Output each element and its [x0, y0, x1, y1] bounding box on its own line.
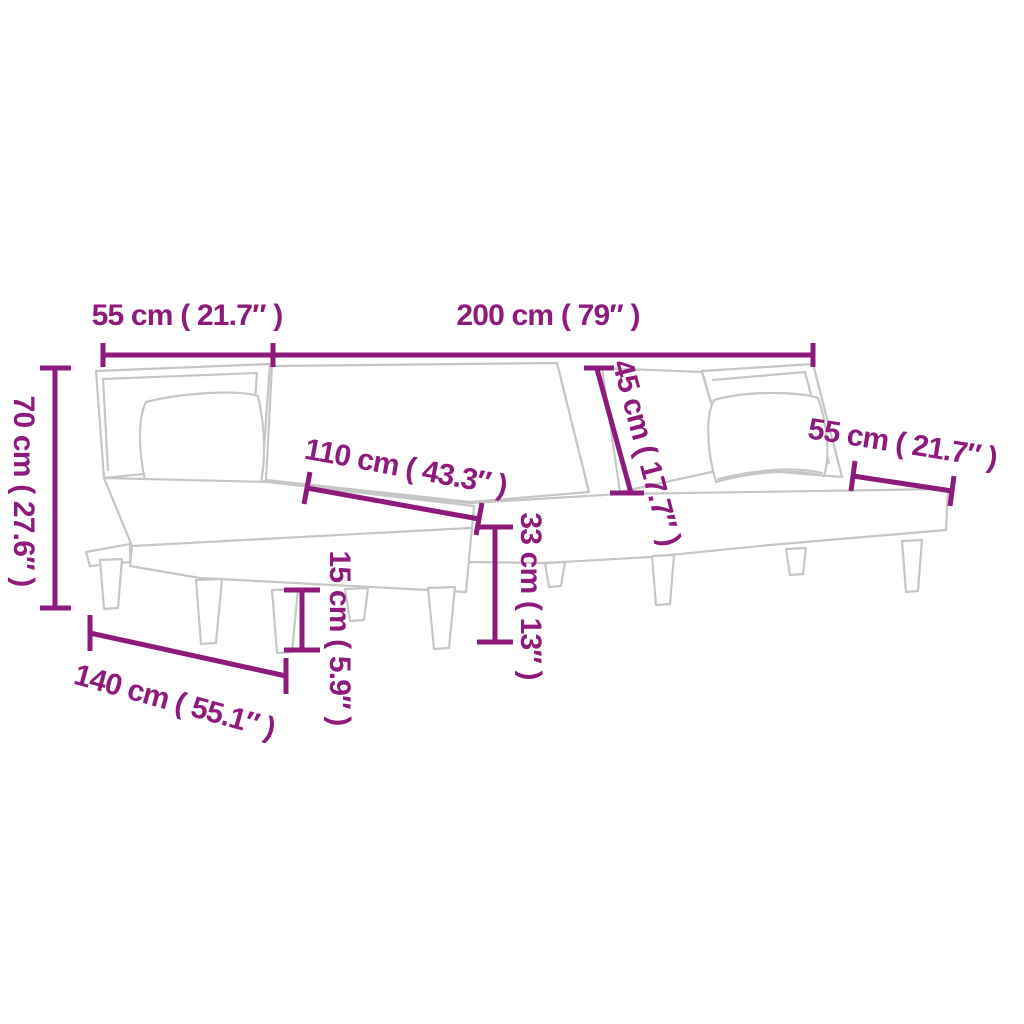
- leg: [902, 540, 922, 592]
- leg: [545, 562, 565, 587]
- leg: [786, 548, 806, 575]
- left-section-width-label: 55 cm ( 21.7″ ): [92, 299, 283, 332]
- leg: [428, 587, 455, 649]
- chaise-length-label: 140 cm ( 55.1″ ): [71, 658, 279, 745]
- overall-height-label: 70 cm ( 27.6″ ): [7, 396, 40, 587]
- product-dimension-diagram: 55 cm ( 21.7″ ) 200 cm ( 79″ ) 70 cm ( 2…: [0, 0, 1024, 1024]
- leg: [196, 579, 222, 644]
- leg: [652, 555, 674, 605]
- overall-height-dimension-line: [40, 368, 71, 608]
- sofa-dimension-illustration: 55 cm ( 21.7″ ) 200 cm ( 79″ ) 70 cm ( 2…: [0, 0, 1024, 1024]
- leg-height-label: 15 cm ( 5.9″ ): [323, 551, 356, 726]
- seat-height-label: 33 cm ( 13″ ): [514, 512, 547, 679]
- leg: [272, 589, 298, 653]
- main-section-width-label: 200 cm ( 79″ ): [456, 299, 639, 332]
- leg: [100, 559, 122, 609]
